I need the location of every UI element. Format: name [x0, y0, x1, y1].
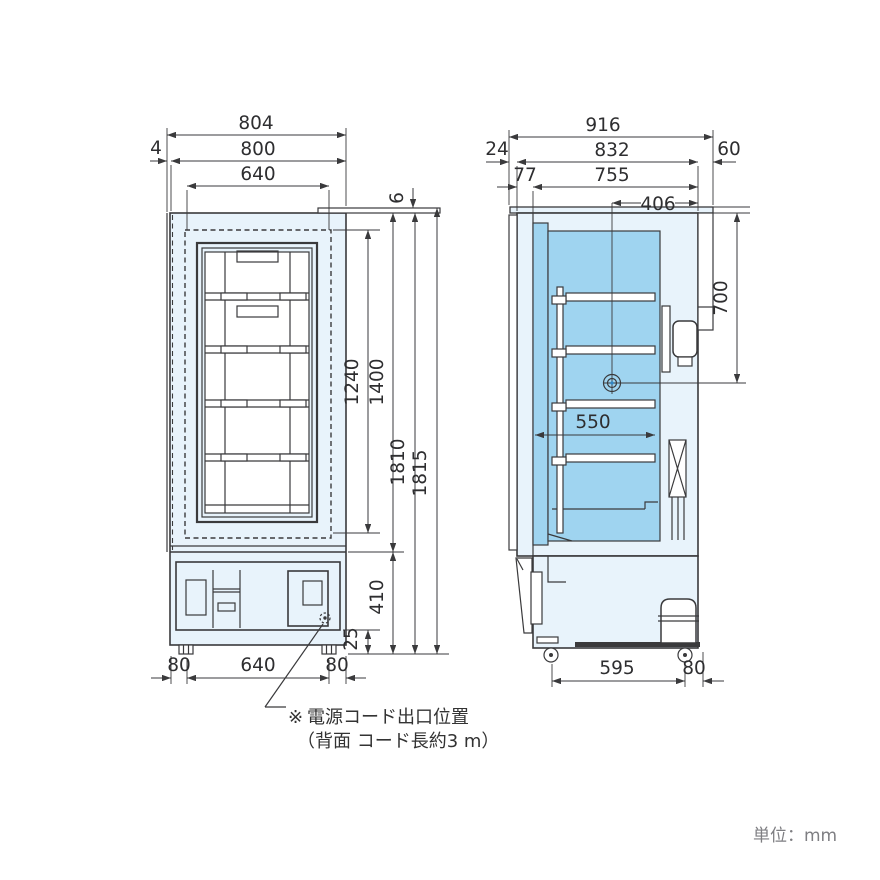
side-door-liner	[533, 223, 548, 545]
front-window-glass	[205, 252, 309, 513]
dim-1810-label: 1810	[388, 438, 409, 485]
dim-755-label: 755	[594, 165, 629, 186]
side-caster-front	[544, 648, 558, 662]
side-hinge-plate	[531, 572, 542, 624]
power-cord-outlet-dot-front	[323, 616, 326, 619]
dim-60-label: 60	[717, 139, 741, 160]
technical-drawing-page: 804 800 4 640 6 1240 1400 410 25 1810 18…	[0, 0, 880, 880]
side-caster-bracket	[537, 637, 558, 643]
note-marker: ※	[288, 707, 303, 728]
dim-77-label: 77	[513, 165, 537, 186]
side-top-panel	[510, 207, 713, 213]
front-view: 804 800 4 640 6 1240 1400 410 25 1810 18…	[150, 113, 449, 684]
dimension-drawing: 804 800 4 640 6 1240 1400 410 25 1810 18…	[0, 0, 880, 880]
front-foot-left	[179, 645, 193, 654]
dim-916-label: 916	[585, 115, 620, 136]
dim-1400-label: 1400	[367, 358, 388, 405]
front-top-panel	[318, 208, 440, 213]
side-compressor	[658, 599, 699, 643]
front-foot-right	[322, 645, 336, 654]
dim-6-label: 6	[387, 192, 408, 204]
side-back-step	[678, 357, 692, 366]
dim-80-left-label: 80	[167, 655, 191, 676]
side-hinge-bracket	[516, 558, 532, 633]
dim-24-label: 24	[485, 139, 509, 160]
side-view: 916 832 24 60 77 755 406 700 550 595 80	[485, 115, 750, 687]
dim-406-label: 406	[640, 194, 675, 215]
note-line2: （背面 コード長約3 m）	[297, 731, 499, 752]
dim-700-label: 700	[711, 280, 732, 315]
dim-550-label: 550	[575, 412, 610, 433]
dim-640-top-label: 640	[240, 164, 275, 185]
side-door-front-panel	[509, 215, 517, 550]
note-line1: 電源コード出口位置	[307, 707, 469, 728]
dim-4-label: 4	[150, 138, 162, 159]
dim-1815-label: 1815	[410, 449, 431, 496]
side-back-bar	[662, 306, 670, 372]
dim-640-bottom-label: 640	[240, 655, 275, 676]
power-cord-outlet-dot-side	[610, 381, 613, 384]
dim-595-label: 595	[599, 658, 634, 679]
dim-832-label: 832	[594, 140, 629, 161]
dim-410-label: 410	[367, 579, 388, 614]
dim-80-right-label: 80	[325, 655, 349, 676]
dim-1240-label: 1240	[342, 358, 363, 405]
unit-label: 単位：mm	[753, 826, 837, 846]
dim-800-label: 800	[240, 139, 275, 160]
dim-25-label: 25	[341, 627, 362, 651]
dim-80-rear-label: 80	[682, 658, 706, 679]
side-duct-crossbox	[669, 440, 686, 497]
side-back-access-port	[673, 321, 697, 357]
dim-804-label: 804	[238, 113, 273, 134]
